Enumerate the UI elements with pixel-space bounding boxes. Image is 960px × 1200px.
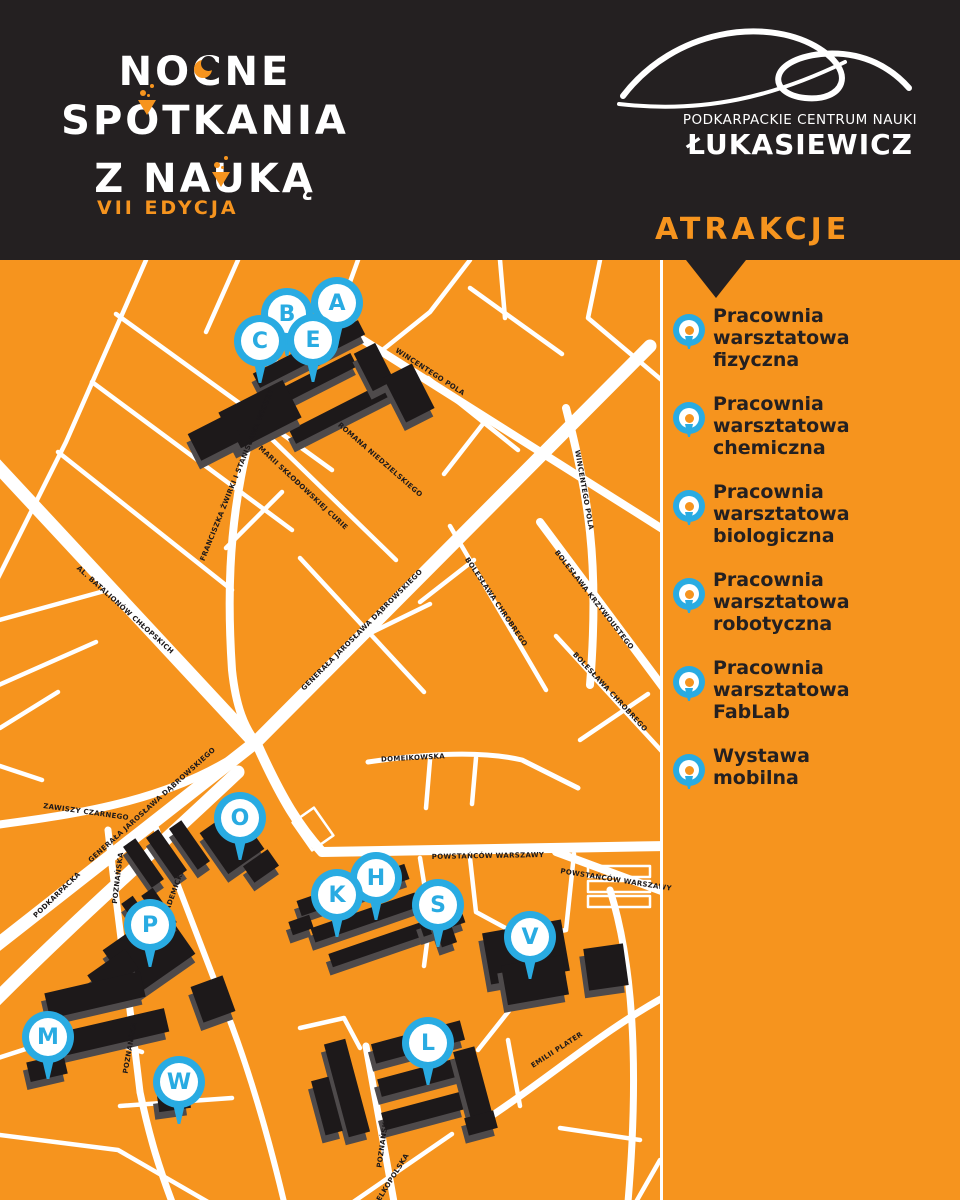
pin-letter: C bbox=[241, 322, 279, 360]
map-roads-buildings bbox=[0, 260, 660, 1200]
attraction-item: Pracownia warsztatowa fizyczna bbox=[673, 305, 943, 385]
map-pin-O: O bbox=[214, 792, 266, 844]
attraction-label: Pracownia warsztatowa robotyczna bbox=[713, 569, 850, 635]
pin-letter: M bbox=[29, 1018, 67, 1056]
pin-letter: L bbox=[409, 1024, 447, 1062]
map-pin-S: S bbox=[412, 879, 464, 931]
attraction-item: Wystawa mobilna bbox=[673, 745, 943, 825]
attractions-sidebar: Pracownia warsztatowa fizycznaPracownia … bbox=[663, 260, 960, 1200]
attraction-label: Pracownia warsztatowa fizyczna bbox=[713, 305, 850, 371]
pin-letter: P bbox=[131, 906, 169, 944]
pin-letter: S bbox=[419, 886, 457, 924]
flask-icon bbox=[138, 100, 156, 115]
science-center-logo-swoosh bbox=[615, 18, 915, 113]
map-pin-M: M bbox=[22, 1011, 74, 1063]
attraction-item: Pracownia warsztatowa biologiczna bbox=[673, 481, 943, 561]
pin-letter: K bbox=[318, 876, 356, 914]
attractions-heading: ATRAKCJE bbox=[655, 212, 850, 247]
city-map: WINCENTEGO POLAROMANA NIEDZIELSKIEGOFRAN… bbox=[0, 260, 660, 1200]
attraction-label: Pracownia warsztatowa biologiczna bbox=[713, 481, 850, 547]
map-pin-L: L bbox=[402, 1017, 454, 1069]
org-name-large: ŁUKASIEWICZ bbox=[660, 128, 940, 161]
attraction-item: Pracownia warsztatowa robotyczna bbox=[673, 569, 943, 649]
attraction-label: Pracownia warsztatowa FabLab bbox=[713, 657, 850, 723]
header-band: NOCNE SPOTKANIA Z NAUKĄ VII EDYCJA PODKA… bbox=[0, 0, 960, 260]
attraction-label: Wystawa mobilna bbox=[713, 745, 810, 789]
map-pin-V: V bbox=[504, 911, 556, 963]
flask-icon-2 bbox=[212, 172, 230, 187]
moon-icon bbox=[194, 60, 212, 78]
map-pin-C: C bbox=[234, 315, 286, 367]
poster-page: WINCENTEGO POLAROMANA NIEDZIELSKIEGOFRAN… bbox=[0, 0, 960, 1200]
attraction-label: Pracownia warsztatowa chemiczna bbox=[713, 393, 850, 459]
edition-label: VII EDYCJA bbox=[97, 197, 239, 219]
attraction-item: Pracownia warsztatowa FabLab bbox=[673, 657, 943, 737]
pin-letter: W bbox=[160, 1063, 198, 1101]
event-title-line2: SPOTKANIA bbox=[60, 101, 350, 141]
org-name-small: PODKARPACKIE CENTRUM NAUKI bbox=[660, 112, 940, 128]
speech-pointer-triangle bbox=[686, 260, 746, 298]
attraction-item: Pracownia warsztatowa chemiczna bbox=[673, 393, 943, 473]
pin-letter: E bbox=[294, 321, 332, 359]
map-pin-P: P bbox=[124, 899, 176, 951]
map-pin-W: W bbox=[153, 1056, 205, 1108]
pin-letter: O bbox=[221, 799, 259, 837]
map-sidebar-divider bbox=[660, 260, 663, 1200]
event-title-line3: Z NAUKĄ bbox=[60, 159, 350, 199]
map-pin-K: K bbox=[311, 869, 363, 921]
map-pin-E: E bbox=[287, 314, 339, 366]
pin-letter: V bbox=[511, 918, 549, 956]
